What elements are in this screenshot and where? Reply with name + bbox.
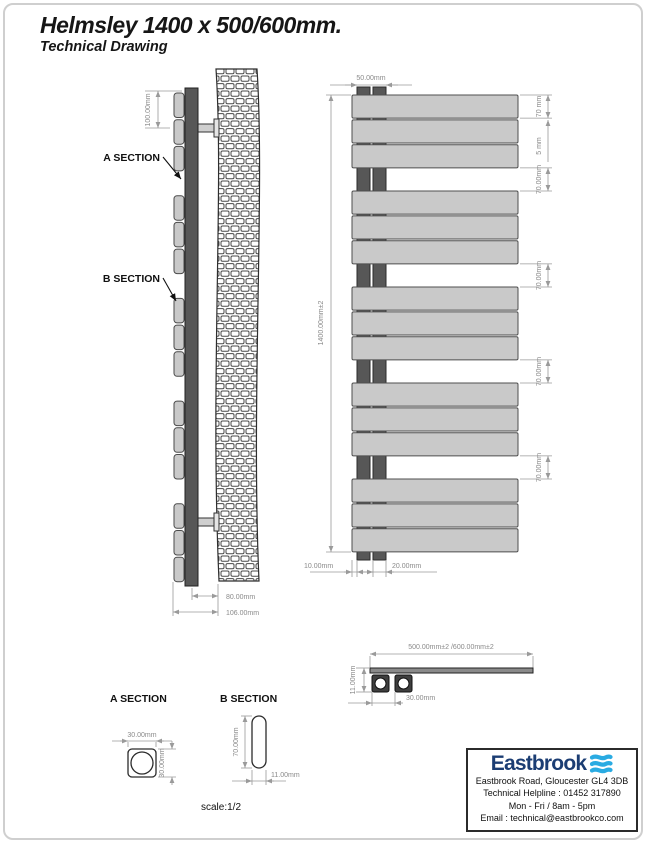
section-a-height-text: 30.00mm <box>159 748 166 777</box>
dim-bracket-offset-text: 100.00mm <box>145 93 152 126</box>
panel-bar <box>352 529 518 552</box>
info-hours: Mon - Fri / 8am - 5pm <box>468 800 636 812</box>
panel-edge <box>174 455 184 480</box>
front-view: 50.00mm 1400.00mm±2 <box>304 75 552 577</box>
section-a-bore <box>131 752 153 774</box>
panel-bar <box>352 408 518 431</box>
tube-top-profile-1 <box>372 675 389 692</box>
manufacturer-info-box: Eastbrook Eastbrook Road, Gloucester GL4… <box>466 748 638 832</box>
dim-depth-80-text: 80.00mm <box>226 594 255 601</box>
section-a-width-text: 30.00mm <box>127 732 156 739</box>
dim-tube-pitch-text: 20.00mm <box>392 563 421 570</box>
section-b-width-dim: 11.00mm <box>232 770 300 785</box>
dim-overall-height-text: 1400.00mm±2 <box>318 301 325 346</box>
panel-bars <box>352 95 518 552</box>
panel-edge <box>174 249 184 274</box>
panel-edge <box>174 298 184 323</box>
side-collector-bar <box>185 88 198 586</box>
panel-bar <box>352 241 518 264</box>
dim-group-gap-1: 70.00mm <box>536 165 548 194</box>
dim-tube-spacing: 50.00mm <box>330 75 412 85</box>
panel-edge <box>174 557 184 582</box>
dim-group-gap-1-text: 70.00mm <box>536 165 543 194</box>
section-a-width-dim: 30.00mm <box>112 732 172 747</box>
dim-panel-gap-text: 5 mm <box>536 137 543 155</box>
section-b-detail: B SECTION 70.00mm 11.00mm <box>220 693 300 785</box>
panel-bar <box>352 216 518 239</box>
a-section-pointer-label: A SECTION <box>103 152 160 164</box>
section-a-height-dim: 30.00mm <box>158 741 176 785</box>
panel-edge <box>174 325 184 350</box>
info-email: Email : technical@eastbrookco.com <box>468 812 636 824</box>
section-a-label: A SECTION <box>110 693 167 705</box>
b-section-arrow <box>163 278 176 301</box>
dim-panel-gap: 5 mm <box>536 120 548 162</box>
dim-top-width-text: 500.00mm±2 /600.00mm±2 <box>408 644 494 651</box>
panel-edge <box>174 504 184 529</box>
scale-note: scale:1/2 <box>201 802 241 813</box>
panel-bar <box>352 287 518 310</box>
wall-cross-section <box>216 69 260 581</box>
top-view: 500.00mm±2 /600.00mm±2 11.00mm <box>348 644 533 706</box>
panel-bar <box>352 312 518 335</box>
side-panel-edges <box>174 93 184 582</box>
panel-edge <box>174 120 184 145</box>
section-b-label: B SECTION <box>220 693 277 705</box>
dim-bottom-offsets: 10.00mm 20.00mm <box>304 560 437 577</box>
panel-bar <box>352 433 518 456</box>
dim-overall-height: 1400.00mm±2 <box>318 95 351 552</box>
dim-panel-height: 70 mm <box>536 95 548 118</box>
panel-edge <box>174 428 184 453</box>
section-b-width-text: 11.00mm <box>271 772 300 779</box>
panel-edge <box>174 531 184 556</box>
dim-group-gap-4-text: 70.00mm <box>536 453 543 482</box>
section-b-height-text: 70.00mm <box>233 727 240 756</box>
dim-top-width: 500.00mm±2 /600.00mm±2 <box>370 644 533 668</box>
mounting-bracket-top <box>198 119 219 137</box>
side-view: 100.00mm A SECTION B SECTION 80.00mm 106… <box>103 69 260 617</box>
info-address: Eastbrook Road, Gloucester GL4 3DB <box>468 775 636 787</box>
dim-group-gap-3-text: 70.00mm <box>536 357 543 386</box>
panel-edge <box>174 401 184 426</box>
dim-group-gap-2: 70.00mm <box>536 261 548 290</box>
dim-depth-106-text: 106.00mm <box>226 610 259 617</box>
panel-edge <box>174 222 184 247</box>
brand-logo: Eastbrook <box>468 753 636 775</box>
tube-top-profile-2 <box>395 675 412 692</box>
dim-panel-height-text: 70 mm <box>536 96 543 118</box>
b-section-pointer-label: B SECTION <box>103 273 160 285</box>
drawing-canvas: 100.00mm A SECTION B SECTION 80.00mm 106… <box>0 0 646 843</box>
mounting-bracket-bottom <box>198 513 219 531</box>
dim-group-gap-3: 70.00mm <box>536 357 548 386</box>
info-helpline: Technical Helpline : 01452 317890 <box>468 787 636 799</box>
dim-tube-spacing-text: 50.00mm <box>356 75 385 82</box>
panel-bar <box>352 120 518 143</box>
panel-edge <box>174 196 184 221</box>
panel-bar <box>352 504 518 527</box>
technical-drawing-page: Helmsley 1400 x 500/600mm. Technical Dra… <box>0 0 646 843</box>
brand-waves-icon <box>589 754 613 775</box>
panel-bar <box>352 337 518 360</box>
panel-bar <box>352 95 518 118</box>
panel-edge <box>174 93 184 118</box>
panel-bar <box>352 479 518 502</box>
panel-top-profile <box>370 668 533 673</box>
section-b-stadium <box>252 716 266 768</box>
panel-bar <box>352 145 518 168</box>
dim-group-gap-4: 70.00mm <box>536 453 548 482</box>
panel-edge <box>174 352 184 377</box>
dim-top-thickness: 11.00mm <box>350 666 372 695</box>
section-a-detail: A SECTION 30.00mm 30.00mm <box>110 693 176 785</box>
dim-top-tube-pitch: 30.00mm <box>348 692 435 706</box>
dim-group-gap-2-text: 70.00mm <box>536 261 543 290</box>
dim-top-tube-pitch-text: 30.00mm <box>406 695 435 702</box>
dim-bottom-offset-text: 10.00mm <box>304 563 333 570</box>
panel-bar <box>352 191 518 214</box>
section-b-height-dim: 70.00mm <box>233 716 252 768</box>
brand-wordmark: Eastbrook <box>491 752 587 776</box>
dim-top-thickness-text: 11.00mm <box>350 666 357 695</box>
panel-edge <box>174 146 184 171</box>
panel-bar <box>352 383 518 406</box>
